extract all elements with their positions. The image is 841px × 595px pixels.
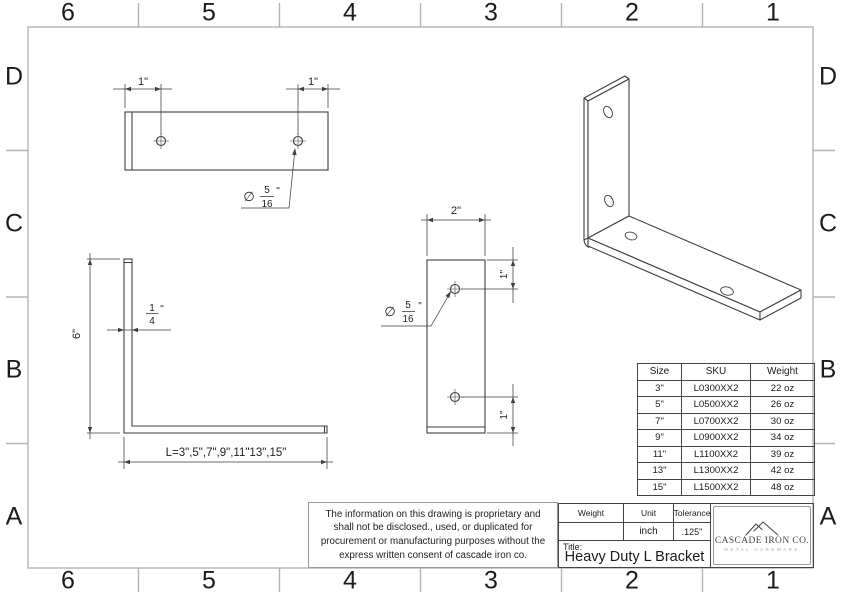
- fraction-numerator: 5: [405, 300, 411, 311]
- cell-sku: L0900XX2: [682, 430, 751, 447]
- inch-mark: ": [418, 301, 422, 312]
- top-view-dimensions: [113, 84, 340, 208]
- iso-horizontal-leg: [588, 216, 801, 312]
- dim-label-1in-top: 1": [499, 270, 510, 280]
- table-row: 15" L1500XX2 48 oz: [638, 479, 815, 496]
- dim-label-2in: 2": [451, 205, 461, 217]
- cell-weight: 30 oz: [751, 413, 815, 430]
- fraction-numerator: 1: [149, 303, 155, 314]
- dim-label-1in-right: 1": [308, 76, 318, 88]
- cell-sku: L0700XX2: [682, 413, 751, 430]
- cell-size: 7": [638, 413, 682, 430]
- logo-cell: CASCADE IRON CO. METAL HARDWARE: [711, 504, 814, 568]
- cell-weight: 39 oz: [751, 446, 815, 463]
- front-view-dimensions: [381, 214, 518, 446]
- table-row: 7" L0700XX2 30 oz: [638, 413, 815, 430]
- side-view: 6" 1 4 " L=3",5",7",9",11"13",15": [71, 253, 333, 469]
- drawing-sheet: 6 5 4 3 2 1 6 5 4 3 2 1 D C B A D C B A: [0, 0, 841, 595]
- fraction-denominator: 4: [149, 316, 155, 327]
- cell-sku: L0500XX2: [682, 397, 751, 414]
- hole-callout: ∅ 5 16 ": [384, 300, 422, 325]
- fraction-denominator: 16: [261, 199, 273, 210]
- inch-mark: ": [160, 304, 164, 315]
- drawing-title: Heavy Duty L Bracket: [559, 549, 710, 565]
- company-logo: CASCADE IRON CO. METAL HARDWARE: [713, 506, 811, 565]
- title-block: Weight Unit Tolerance CASCADE IRON CO. M…: [558, 503, 814, 568]
- cell-size: 3": [638, 380, 682, 397]
- front-view: 2" 1" 1" ∅ 5 16 ": [381, 205, 518, 446]
- cell-weight: 48 oz: [751, 479, 815, 496]
- dim-label-length-options: L=3",5",7",9",11"13",15": [166, 447, 287, 459]
- title-cell: Title: Heavy Duty L Bracket: [559, 541, 711, 568]
- inch-mark: ": [276, 186, 280, 197]
- proprietary-note: The information on this drawing is propr…: [308, 502, 558, 568]
- dim-label-1in-bottom: 1": [499, 410, 510, 420]
- unit-value: inch: [624, 523, 674, 541]
- table-header-row: Size SKU Weight: [638, 364, 815, 381]
- weight-header: Weight: [559, 504, 624, 523]
- size-table: Size SKU Weight 3" L0300XX2 22 oz 5" L05…: [637, 363, 815, 496]
- col-header-size: Size: [638, 364, 682, 381]
- cell-weight: 34 oz: [751, 430, 815, 447]
- table-row: 9" L0900XX2 34 oz: [638, 430, 815, 447]
- front-view-plate: [427, 260, 485, 433]
- cell-size: 11": [638, 446, 682, 463]
- logo-tagline: METAL HARDWARE: [724, 547, 799, 552]
- hole-callout: ∅ 5 16 ": [243, 185, 280, 210]
- table-row: 11" L1100XX2 39 oz: [638, 446, 815, 463]
- cell-weight: 22 oz: [751, 380, 815, 397]
- diameter-symbol: ∅: [384, 304, 395, 319]
- fraction-denominator: 16: [402, 314, 414, 325]
- tolerance-header: Tolerance: [674, 504, 711, 523]
- fraction-numerator: 5: [264, 185, 270, 196]
- table-row: 3" L0300XX2 22 oz: [638, 380, 815, 397]
- cell-size: 9": [638, 430, 682, 447]
- cell-weight: 26 oz: [751, 397, 815, 414]
- cell-sku: L1500XX2: [682, 479, 751, 496]
- cell-sku: L1100XX2: [682, 446, 751, 463]
- cell-sku: L0300XX2: [682, 380, 751, 397]
- table-row: 5" L0500XX2 26 oz: [638, 397, 815, 414]
- diameter-symbol: ∅: [243, 189, 254, 204]
- cell-weight: 42 oz: [751, 463, 815, 480]
- table-row: 13" L1300XX2 42 oz: [638, 463, 815, 480]
- col-header-sku: SKU: [682, 364, 751, 381]
- isometric-view: [584, 76, 801, 320]
- iso-vertical-leg: [588, 79, 629, 238]
- logo-company-name: CASCADE IRON CO.: [715, 536, 809, 546]
- col-header-weight: Weight: [751, 364, 815, 381]
- cell-size: 5": [638, 397, 682, 414]
- side-view-profile: [124, 259, 327, 433]
- dim-label-1in-left: 1": [138, 76, 148, 88]
- cell-size: 13": [638, 463, 682, 480]
- tolerance-value: .125": [674, 523, 711, 541]
- thickness-callout: 1 4 ": [146, 303, 164, 327]
- weight-value: [559, 523, 624, 541]
- dim-label-6in: 6": [71, 329, 83, 339]
- mountains-icon: [739, 520, 785, 537]
- top-view: 1" 1" ∅ 5 16 ": [113, 76, 340, 210]
- cell-size: 15": [638, 479, 682, 496]
- unit-header: Unit: [624, 504, 674, 523]
- cell-sku: L1300XX2: [682, 463, 751, 480]
